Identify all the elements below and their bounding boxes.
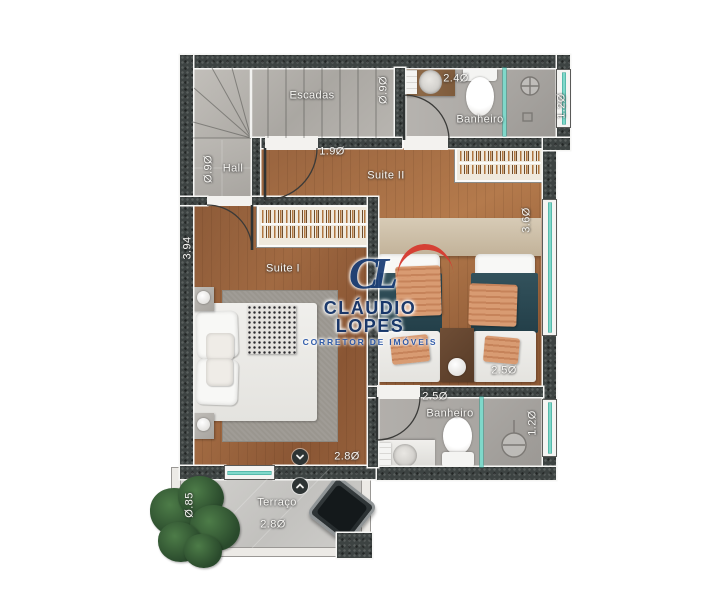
room-label-banheiro-top: Banheiro — [456, 115, 503, 126]
dim-bathroom-top-width: 2.4Ø — [443, 74, 468, 85]
suite1-small-pillow — [206, 333, 234, 360]
dim-terrace-depth: Ø.85 — [185, 492, 196, 517]
floor-plan: Escadas Ø.9Ø 2.4Ø Banheiro 1.2Ø Hall Ø.9… — [0, 0, 721, 600]
exterior-wall-left — [180, 55, 193, 468]
room-label-escadas: Escadas — [290, 91, 335, 102]
dim-terrace-width: 2.8Ø — [260, 520, 285, 531]
room-label-banheiro-bottom: Banheiro — [426, 409, 473, 420]
bathroom-top-towels — [406, 70, 417, 94]
dim-bathroom-bottom-width: 2.5Ø — [422, 392, 447, 403]
dim-suite1-width: 2.8Ø — [334, 452, 359, 463]
suite1-wardrobe — [257, 205, 371, 247]
dim-bathroom-top-depth: 1.2Ø — [557, 93, 568, 118]
watermark: CL CLÁUDIO LOPES CORRETOR DE IMÓVEIS — [288, 252, 452, 347]
suite2-door-opening — [265, 136, 318, 150]
suite2-window — [543, 200, 556, 335]
suite1-lamp — [197, 418, 210, 431]
dim-suite2-door: 1.9Ø — [319, 147, 344, 158]
bathroom-top-shower — [506, 68, 557, 136]
suite2-lamp — [448, 358, 466, 376]
suite2-headboard — [372, 218, 541, 256]
dim-suite2-width: 2.5Ø — [491, 366, 516, 377]
dim-bathroom-bottom-depth: 1.2Ø — [528, 410, 539, 435]
dim-hall-width: Ø.9Ø — [204, 155, 215, 183]
room-label-hall: Hall — [223, 164, 244, 175]
wall-suite2-top — [448, 138, 543, 148]
exterior-wall-top — [180, 55, 570, 68]
suite1-small-pillow — [206, 358, 233, 386]
watermark-tagline: CORRETOR DE IMÓVEIS — [288, 338, 452, 347]
wall-stairs-bathroom — [395, 68, 405, 138]
suite2-right-bed-cushion — [483, 336, 520, 365]
bathroom-bottom-toilet-tank — [442, 452, 474, 467]
wardrobe-hangers — [262, 226, 366, 238]
bathroom-bottom-shower-glass — [480, 397, 483, 467]
suite1-window — [225, 466, 274, 479]
watermark-monogram: CL — [349, 252, 391, 296]
chevron-down-icon — [292, 449, 308, 465]
wall-bathroom-bottom-top — [368, 387, 377, 397]
wardrobe-hangers — [262, 210, 366, 223]
room-label-suite2: Suite II — [367, 171, 404, 182]
wardrobe-hangers — [460, 151, 540, 161]
bathroom-bottom-door-opening — [377, 385, 420, 399]
stairs-floor — [193, 68, 395, 138]
exterior-wall-bottom — [274, 466, 377, 479]
bathroom-top-toilet — [466, 77, 494, 116]
bathroom-bottom-window — [543, 400, 556, 456]
room-label-terraco: Terraço — [257, 498, 296, 509]
bathroom-bottom-sink — [393, 444, 417, 467]
wardrobe-rail — [261, 223, 367, 225]
suite2-wardrobe — [455, 146, 545, 182]
suite1-door-opening — [207, 196, 252, 206]
window-glass — [228, 471, 271, 474]
bathroom-top-door-opening — [404, 136, 448, 150]
dim-suite1-length: 3.94 — [183, 236, 194, 259]
plant-foliage — [184, 534, 222, 568]
dim-stairs-width: Ø.9Ø — [379, 76, 390, 104]
wall-hall-suite2 — [252, 138, 260, 205]
wall-suite1-top — [252, 197, 368, 205]
bathroom-top-sink — [419, 70, 442, 94]
wardrobe-rail — [459, 162, 541, 164]
window-glass — [548, 403, 551, 453]
dim-suite2-length: 3.6Ø — [522, 207, 533, 232]
wall-hall-suite1 — [180, 197, 207, 205]
exterior-wall-bottom — [377, 467, 556, 480]
bathroom-top-shower-glass — [503, 68, 506, 136]
window-glass — [548, 203, 551, 332]
suite2-right-bed-throw — [468, 283, 517, 327]
wall-right-jog — [543, 138, 570, 150]
wardrobe-hangers — [460, 165, 540, 174]
watermark-name: CLÁUDIO LOPES — [288, 299, 452, 335]
terrace-chair-seat — [316, 484, 368, 536]
chevron-up-icon — [292, 478, 308, 494]
bathroom-bottom-toilet — [443, 417, 472, 455]
suite1-lamp — [197, 291, 210, 304]
terrace-wall-corner — [337, 533, 372, 558]
